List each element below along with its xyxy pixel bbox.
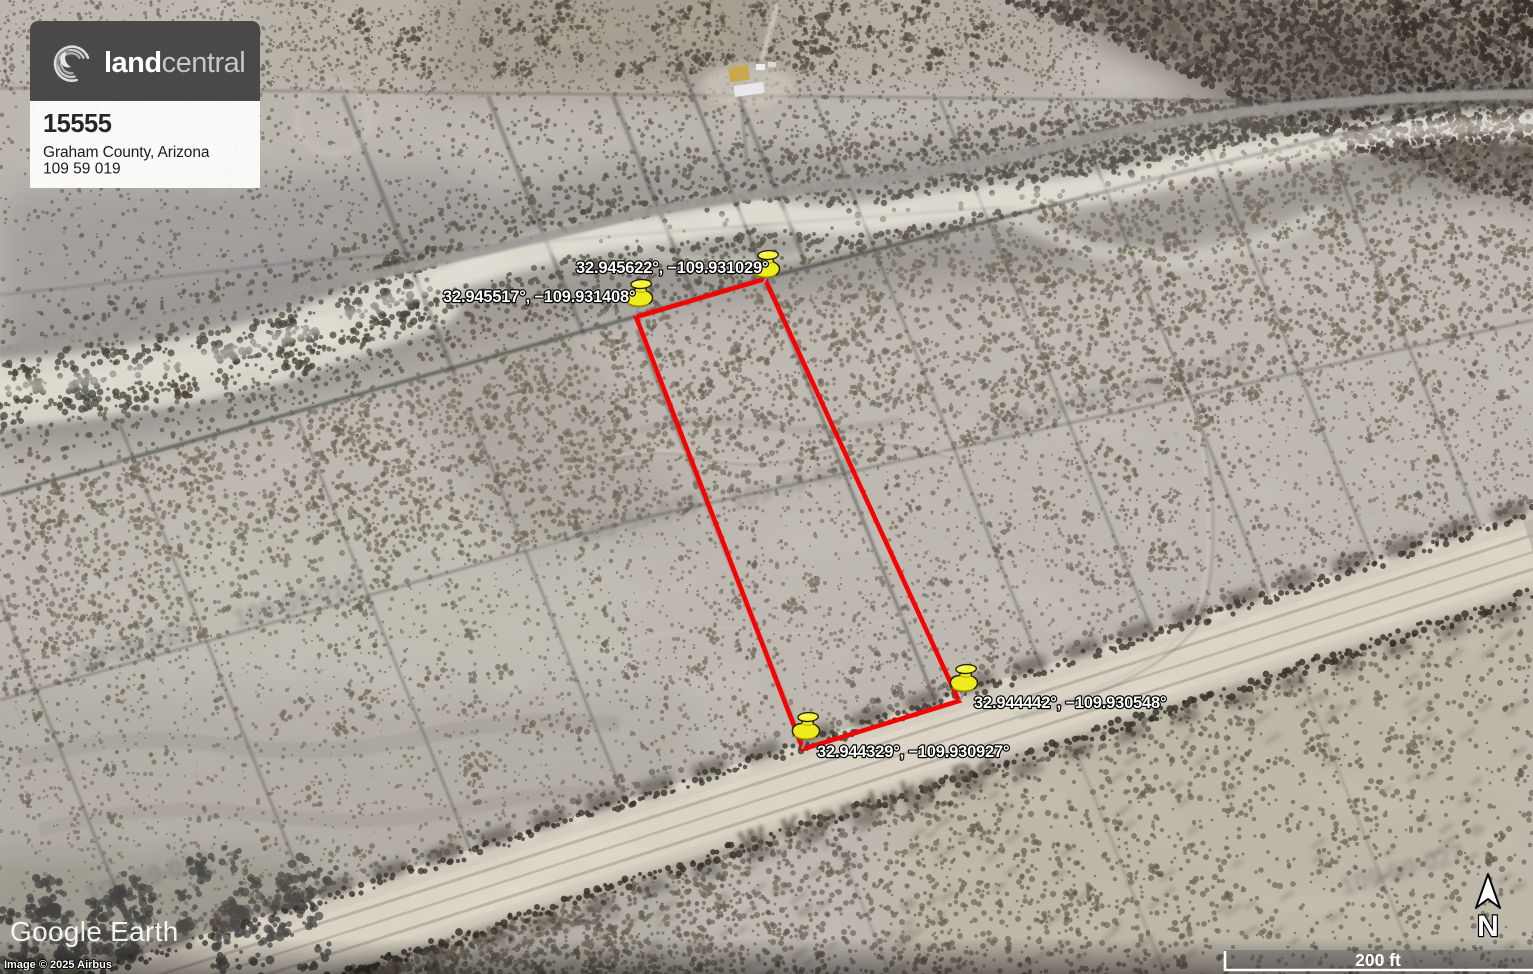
svg-text:32.945622°, −109.931029°: 32.945622°, −109.931029° xyxy=(576,259,768,277)
svg-text:200 ft: 200 ft xyxy=(1355,950,1401,970)
svg-text:15555: 15555 xyxy=(43,110,112,138)
svg-text:landcentral: landcentral xyxy=(104,47,245,79)
svg-text:N: N xyxy=(1477,910,1499,943)
svg-text:Image © 2025 Airbus: Image © 2025 Airbus xyxy=(4,959,112,971)
svg-text:32.945517°, −109.931408°: 32.945517°, −109.931408° xyxy=(443,288,635,306)
svg-text:32.944329°, −109.930927°: 32.944329°, −109.930927° xyxy=(817,743,1009,761)
svg-text:Google Earth: Google Earth xyxy=(10,916,179,947)
svg-text:Graham County, Arizona: Graham County, Arizona xyxy=(43,144,210,161)
svg-text:109 59 019: 109 59 019 xyxy=(43,161,121,178)
svg-text:32.944442°, −109.930548°: 32.944442°, −109.930548° xyxy=(974,694,1166,712)
